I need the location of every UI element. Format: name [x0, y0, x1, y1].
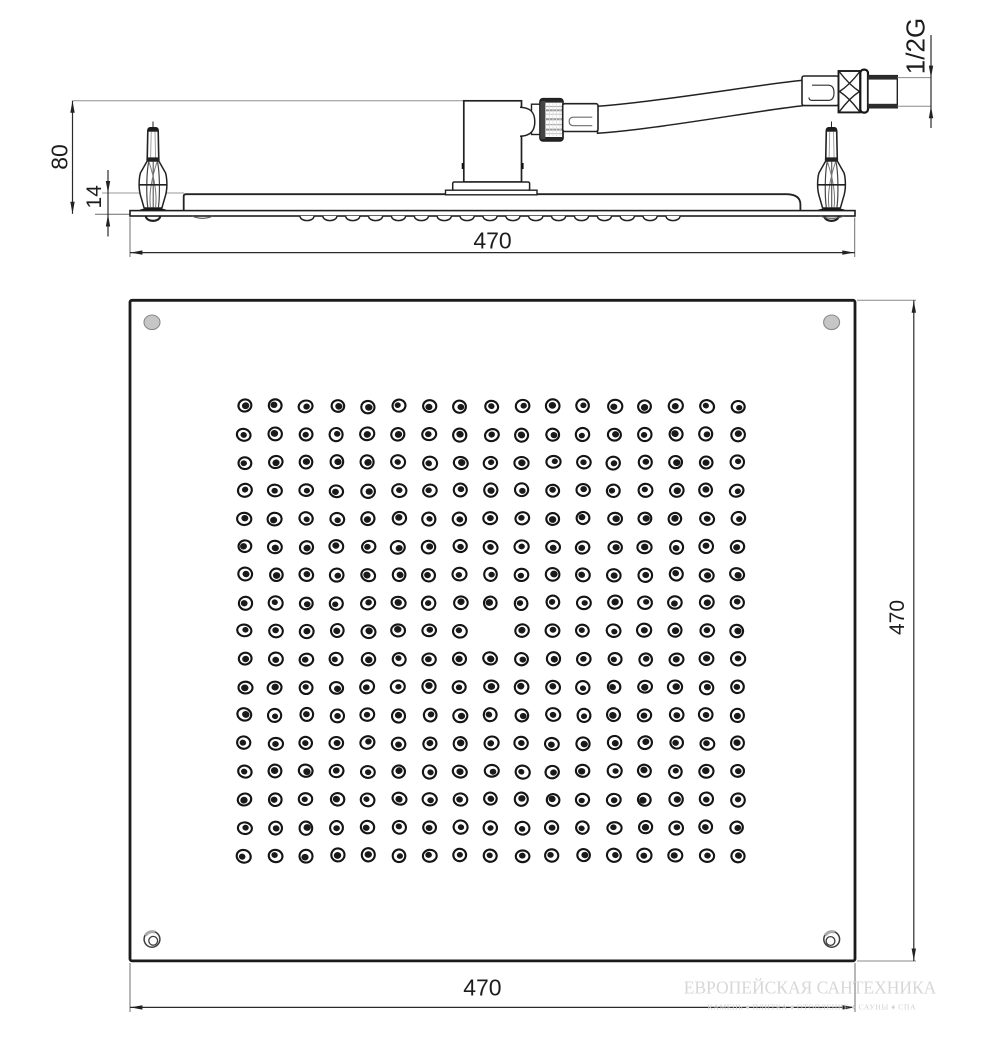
svg-text:80: 80	[47, 144, 73, 170]
svg-text:470: 470	[463, 975, 501, 1001]
svg-text:1/2G: 1/2G	[901, 18, 931, 74]
svg-text:ЕВРОПЕЙСКАЯ САНТЕХНИКА: ЕВРОПЕЙСКАЯ САНТЕХНИКА	[684, 978, 937, 998]
svg-text:14: 14	[83, 185, 106, 209]
svg-text:КАМЕНЬ ♦ ПЛИТКА ♦ ОТОПЛЕНИЕ ♦: КАМЕНЬ ♦ ПЛИТКА ♦ ОТОПЛЕНИЕ ♦ САУНЫ ♦ СП…	[708, 1002, 917, 1011]
svg-text:470: 470	[473, 227, 511, 253]
svg-text:470: 470	[886, 600, 909, 635]
